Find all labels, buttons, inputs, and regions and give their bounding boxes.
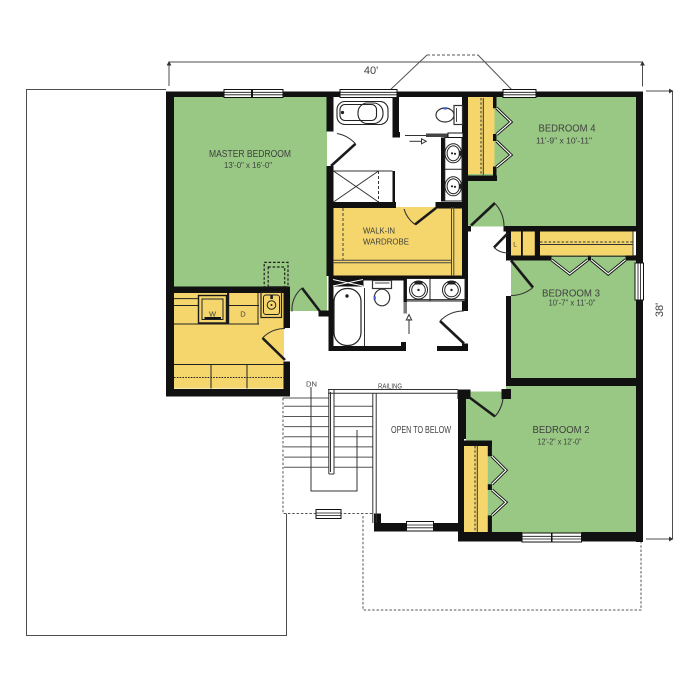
svg-text:WALK-IN: WALK-IN xyxy=(363,226,395,236)
svg-text:BEDROOM 2: BEDROOM 2 xyxy=(533,425,590,436)
svg-text:WARDROBE: WARDROBE xyxy=(363,237,409,247)
svg-text:RAILING: RAILING xyxy=(378,384,402,391)
svg-text:11'-9" x 10'-11": 11'-9" x 10'-11" xyxy=(536,137,592,146)
svg-text:40': 40' xyxy=(364,65,378,77)
svg-text:12'-2" x 12'-0": 12'-2" x 12'-0" xyxy=(538,438,582,447)
svg-text:MASTER BEDROOM: MASTER BEDROOM xyxy=(209,149,291,160)
svg-text:D: D xyxy=(240,310,246,319)
svg-text:DN: DN xyxy=(306,382,317,389)
svg-text:OPEN TO BELOW: OPEN TO BELOW xyxy=(391,425,451,436)
svg-text:13'-0" x 16'-0": 13'-0" x 16'-0" xyxy=(224,161,272,170)
svg-text:BEDROOM 4: BEDROOM 4 xyxy=(539,124,596,135)
svg-text:10'-7" x 11'-0": 10'-7" x 11'-0" xyxy=(549,299,596,308)
svg-text:L: L xyxy=(513,242,517,249)
svg-text:W: W xyxy=(209,310,217,319)
svg-text:38': 38' xyxy=(654,303,666,317)
